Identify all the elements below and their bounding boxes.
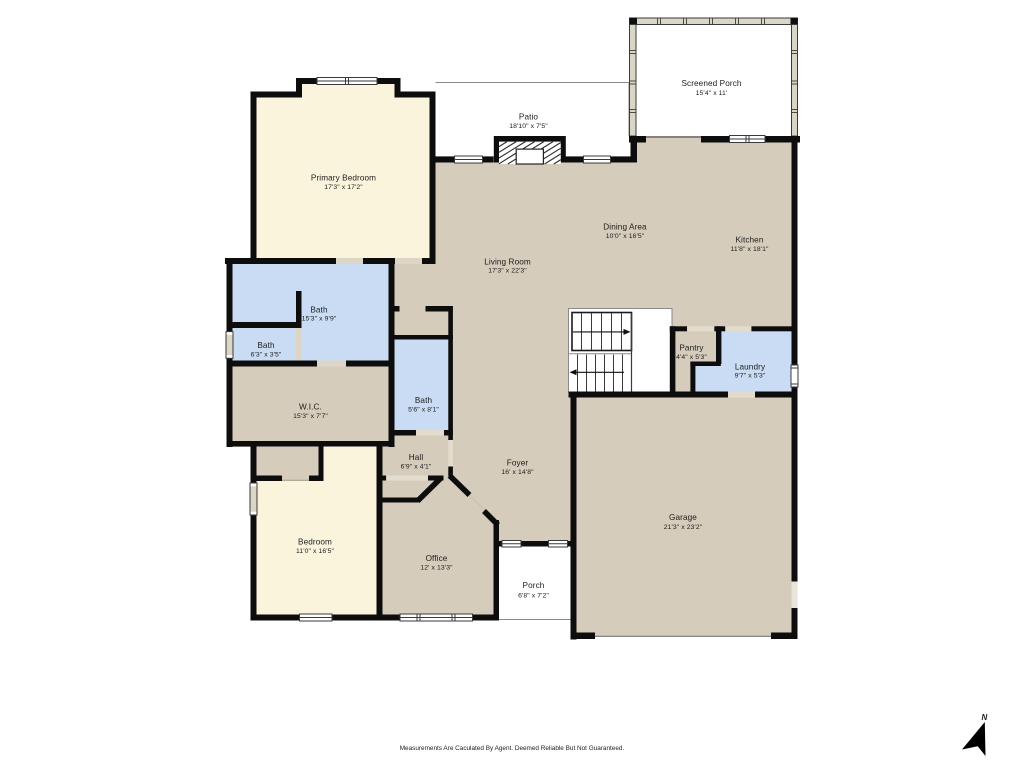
svg-text:18'10" x 7'5": 18'10" x 7'5" (509, 123, 548, 130)
svg-text:6'3" x 3'5": 6'3" x 3'5" (251, 352, 282, 359)
svg-text:N: N (982, 713, 988, 722)
svg-text:15'4" x 11': 15'4" x 11' (696, 90, 728, 97)
svg-text:6'9" x 4'1": 6'9" x 4'1" (401, 464, 432, 471)
svg-text:5'6" x 8'1": 5'6" x 8'1" (408, 407, 439, 414)
svg-text:Pantry: Pantry (679, 344, 704, 353)
svg-text:Bedroom: Bedroom (298, 538, 332, 547)
svg-text:Laundry: Laundry (735, 363, 766, 372)
svg-text:Foyer: Foyer (507, 459, 529, 468)
svg-text:Hall: Hall (409, 453, 424, 462)
svg-text:Office: Office (426, 554, 448, 563)
svg-text:Bath: Bath (257, 341, 275, 350)
svg-text:15'3" x 7'7": 15'3" x 7'7" (293, 413, 328, 420)
svg-text:Bath: Bath (310, 306, 328, 315)
svg-text:Screened Porch: Screened Porch (681, 79, 741, 88)
svg-text:10'0" x 16'5": 10'0" x 16'5" (606, 233, 645, 240)
svg-text:Bath: Bath (415, 396, 433, 405)
svg-text:Primary Bedroom: Primary Bedroom (311, 174, 376, 183)
svg-text:Garage: Garage (669, 513, 697, 522)
svg-text:Measurements Are Caculated By: Measurements Are Caculated By Agent. Dee… (400, 745, 625, 752)
svg-text:11'0" x 16'5": 11'0" x 16'5" (296, 548, 335, 555)
svg-text:Patio: Patio (519, 113, 539, 122)
svg-text:W.I.C.: W.I.C. (299, 403, 322, 412)
svg-text:Kitchen: Kitchen (735, 236, 763, 245)
svg-text:9'7" x 5'3": 9'7" x 5'3" (735, 373, 766, 380)
svg-text:17'3" x 17'2": 17'3" x 17'2" (324, 184, 363, 191)
svg-text:15'3" x 9'9": 15'3" x 9'9" (302, 316, 337, 323)
svg-text:17'3" x 22'3": 17'3" x 22'3" (488, 268, 527, 275)
svg-text:12' x 13'3": 12' x 13'3" (420, 565, 453, 572)
svg-text:16' x 14'8": 16' x 14'8" (501, 469, 534, 476)
svg-text:4'4" x 5'3": 4'4" x 5'3" (676, 354, 707, 361)
svg-text:21'3" x 23'2": 21'3" x 23'2" (664, 524, 703, 531)
svg-text:Living Room: Living Room (484, 258, 531, 267)
svg-text:Dining Area: Dining Area (603, 223, 647, 232)
svg-text:11'8" x 18'1": 11'8" x 18'1" (730, 246, 769, 253)
svg-text:6'8" x 7'2": 6'8" x 7'2" (518, 593, 549, 600)
svg-text:Porch: Porch (523, 581, 545, 590)
